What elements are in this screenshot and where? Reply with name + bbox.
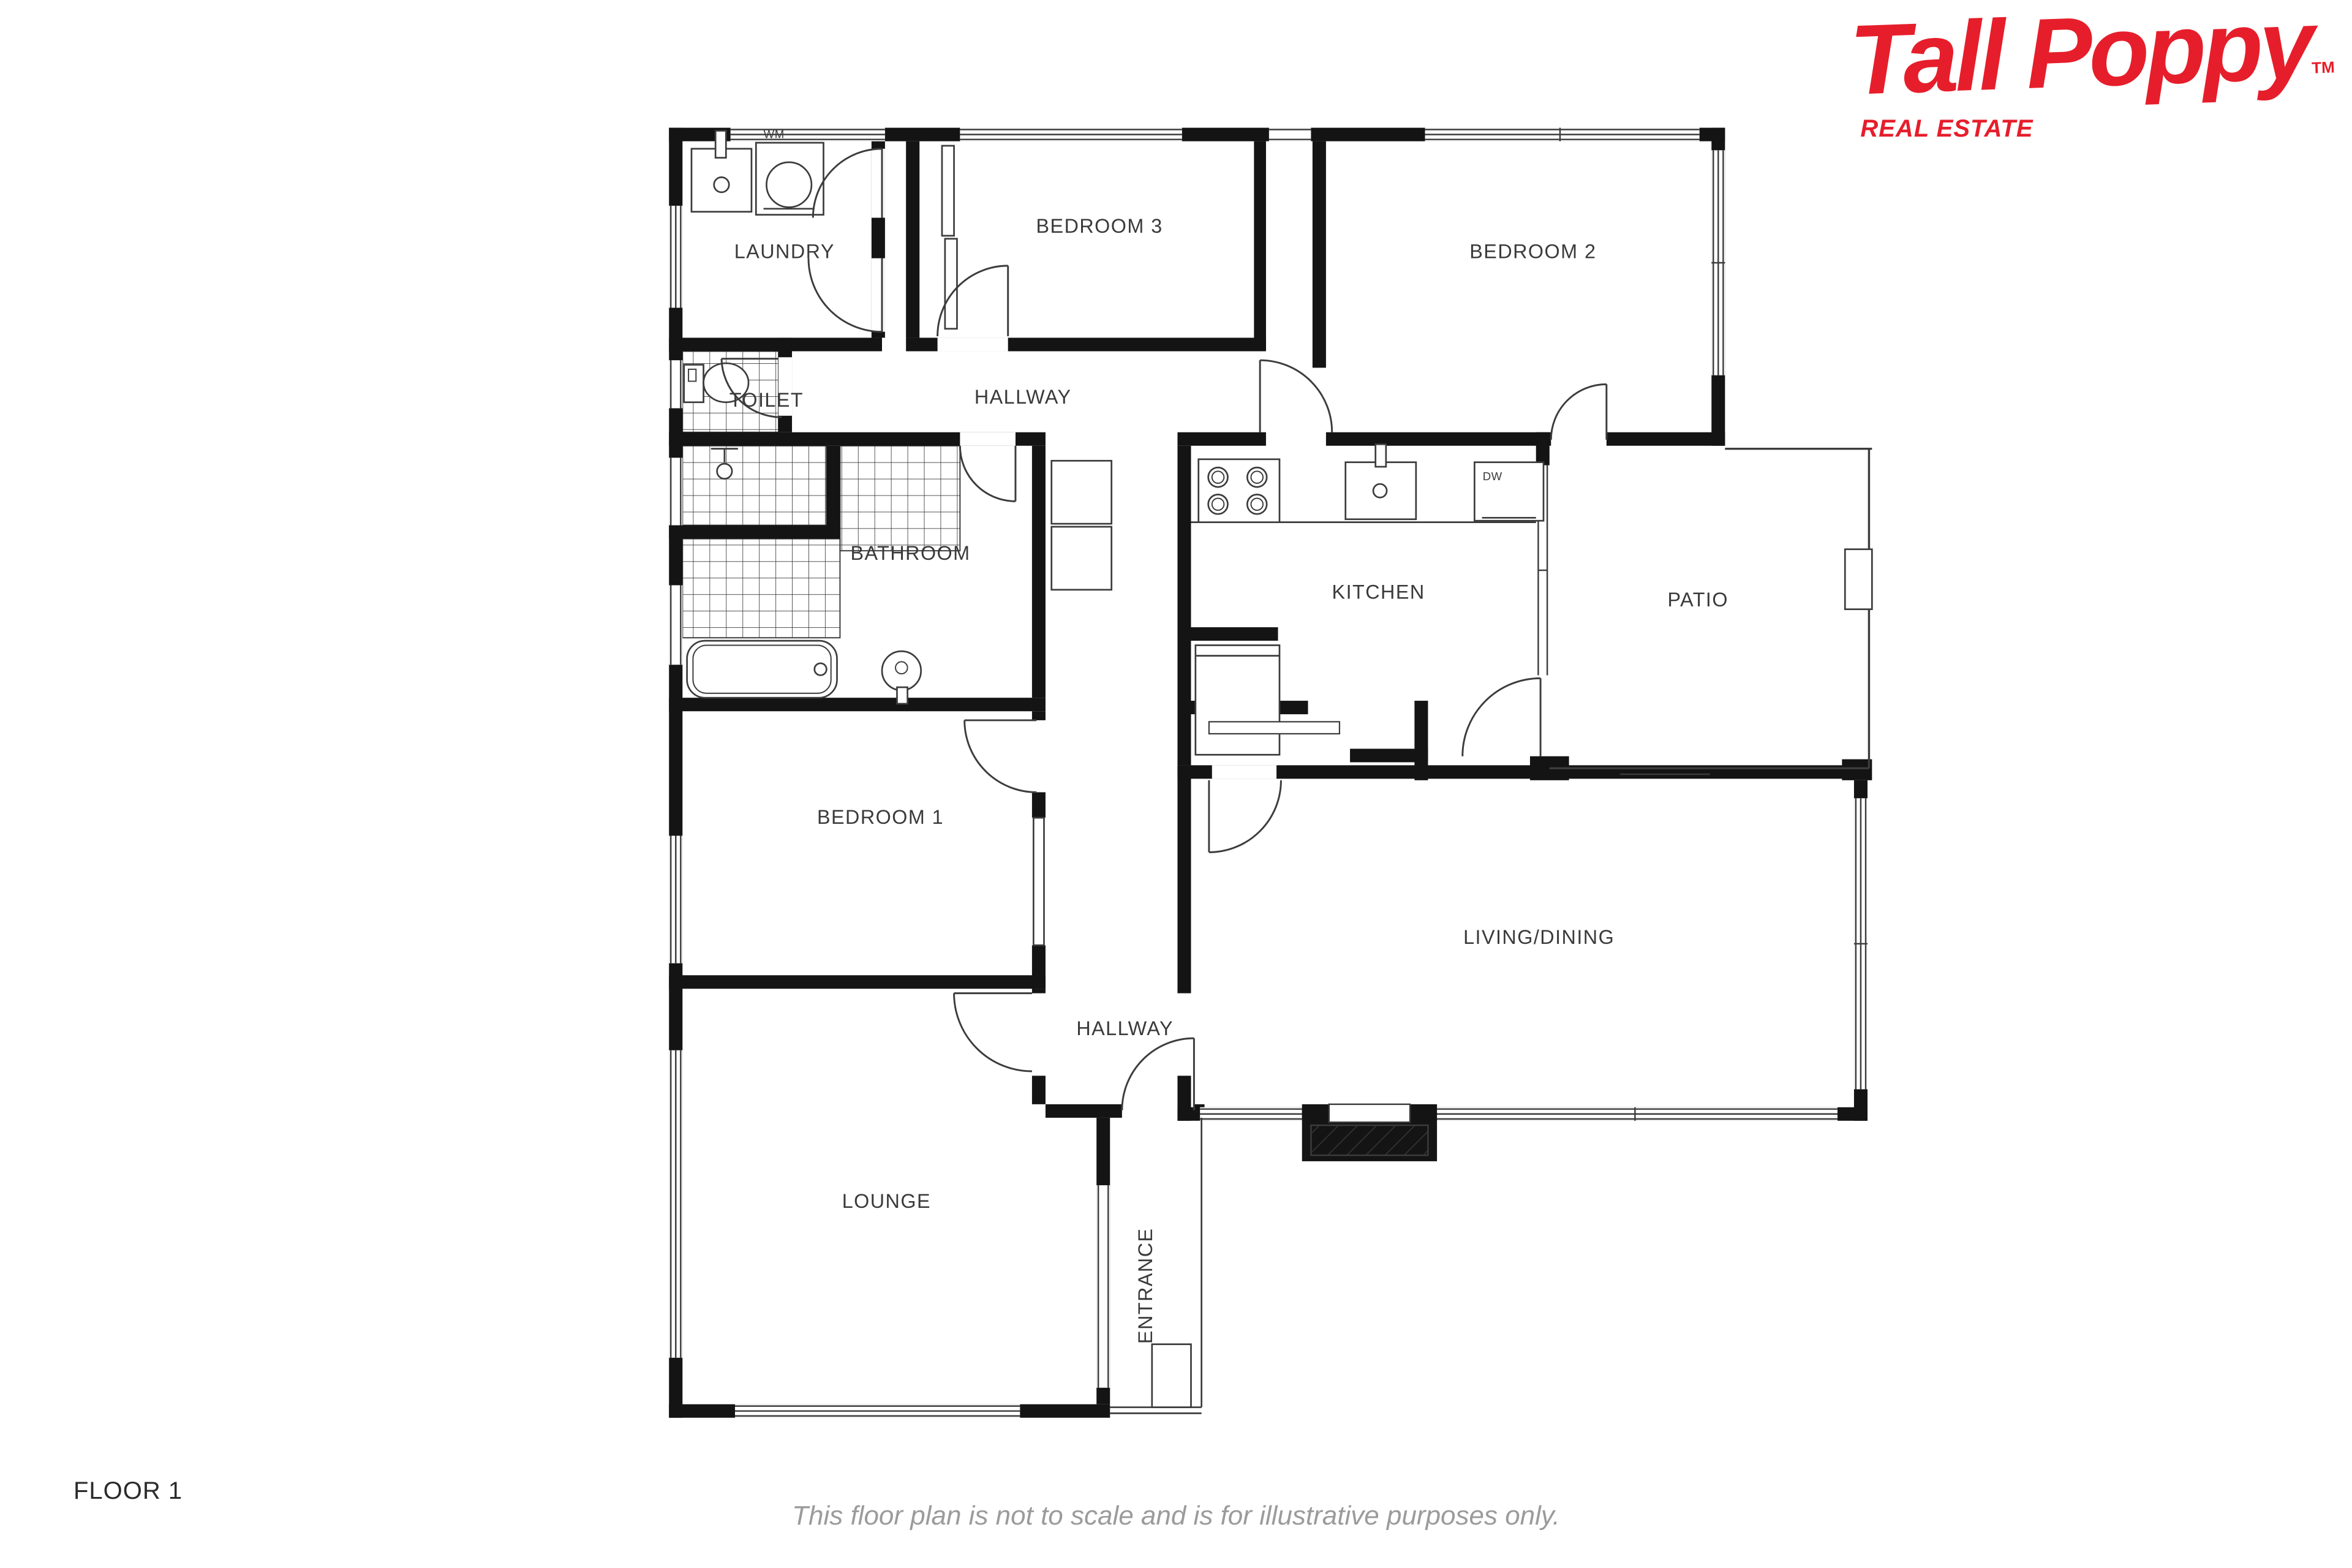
lounge-left-window (669, 1050, 682, 1358)
laundry-door-lower (809, 258, 882, 332)
stove-icon (1199, 459, 1280, 522)
label-dishwasher: DW (1483, 470, 1502, 483)
bedroom1-door (965, 720, 1037, 793)
patio-pillar (1845, 549, 1872, 609)
trademark-symbol: TM (2312, 58, 2335, 77)
bedroom1-left-window (669, 835, 682, 963)
front-door-leaf (1152, 1344, 1191, 1408)
brand-logo: Tall PoppyTM REAL ESTATE (1852, 11, 2336, 141)
laundry-sink-icon (692, 130, 752, 211)
living-door (1209, 780, 1281, 853)
brand-tagline: REAL ESTATE (1860, 116, 2336, 141)
brand-name: Tall PoppyTM (1849, 0, 2336, 110)
kitchen-sink-icon (1346, 444, 1416, 519)
disclaimer-text: This floor plan is not to scale and is f… (0, 1501, 2352, 1531)
vestibule-door (1260, 360, 1332, 432)
bedroom2-top-window (1425, 128, 1700, 141)
basin-icon (882, 651, 921, 704)
label-washing-machine: WM (764, 128, 785, 141)
laundry-left-window (669, 206, 682, 308)
shower-left-window (669, 458, 682, 525)
linen-closet (1052, 461, 1112, 590)
bedroom2-right-window (1711, 150, 1725, 375)
fireplace-icon (1302, 1104, 1437, 1161)
room-label-living-dining: LIVING/DINING (1463, 926, 1615, 948)
bathtub-icon (687, 641, 837, 698)
kitchen-patio-door (1463, 678, 1540, 756)
washing-machine-icon (756, 143, 823, 215)
bathroom-tiles-left (682, 539, 840, 638)
living-right-window (1854, 798, 1868, 1089)
kitchen-counter (1191, 444, 1543, 522)
bedroom2-patio-door (1551, 384, 1607, 440)
room-label-kitchen: KITCHEN (1332, 581, 1425, 603)
room-label-bedroom2: BEDROOM 2 (1469, 241, 1596, 263)
room-label-entrance: ENTRANCE (1134, 1227, 1156, 1343)
doors (722, 149, 1607, 1110)
vestibule-top-window (1269, 128, 1311, 141)
room-label-patio: PATIO (1667, 589, 1728, 611)
room-label-bedroom1: BEDROOM 1 (817, 806, 944, 828)
bathroom-door (960, 446, 1016, 502)
laundry-top-window (731, 128, 885, 141)
living-bottom-window-left (1200, 1107, 1302, 1121)
bedroom1-wardrobe (1033, 818, 1044, 945)
bedroom3-wardrobe (942, 146, 957, 329)
bathroom-left-window (669, 586, 682, 665)
patio-outline (1550, 449, 1872, 774)
kitchen-bench (1209, 722, 1340, 734)
floor-plan: LAUNDRY TOILET HALLWAY BEDROOM 3 BEDROOM… (0, 0, 2352, 1568)
bedroom3-top-window (960, 128, 1182, 141)
lounge-bottom-window (735, 1404, 1020, 1418)
bathroom-tiles-right (840, 446, 960, 551)
shower-tiles (682, 446, 826, 526)
living-bottom-window-right (1433, 1107, 1838, 1121)
toilet-left-window (669, 360, 682, 408)
room-label-laundry: LAUNDRY (734, 241, 835, 263)
fridge-icon (1196, 645, 1280, 755)
entrance-left-window (1096, 1185, 1110, 1388)
room-label-lounge: LOUNGE (842, 1190, 931, 1212)
room-label-toilet: TOILET (729, 389, 804, 411)
lounge-door (954, 993, 1032, 1071)
room-label-hallway-lower: HALLWAY (1076, 1017, 1174, 1039)
room-label-bedroom3: BEDROOM 3 (1036, 215, 1163, 237)
room-label-bathroom: BATHROOM (850, 542, 970, 564)
room-label-hallway-top: HALLWAY (974, 386, 1072, 408)
